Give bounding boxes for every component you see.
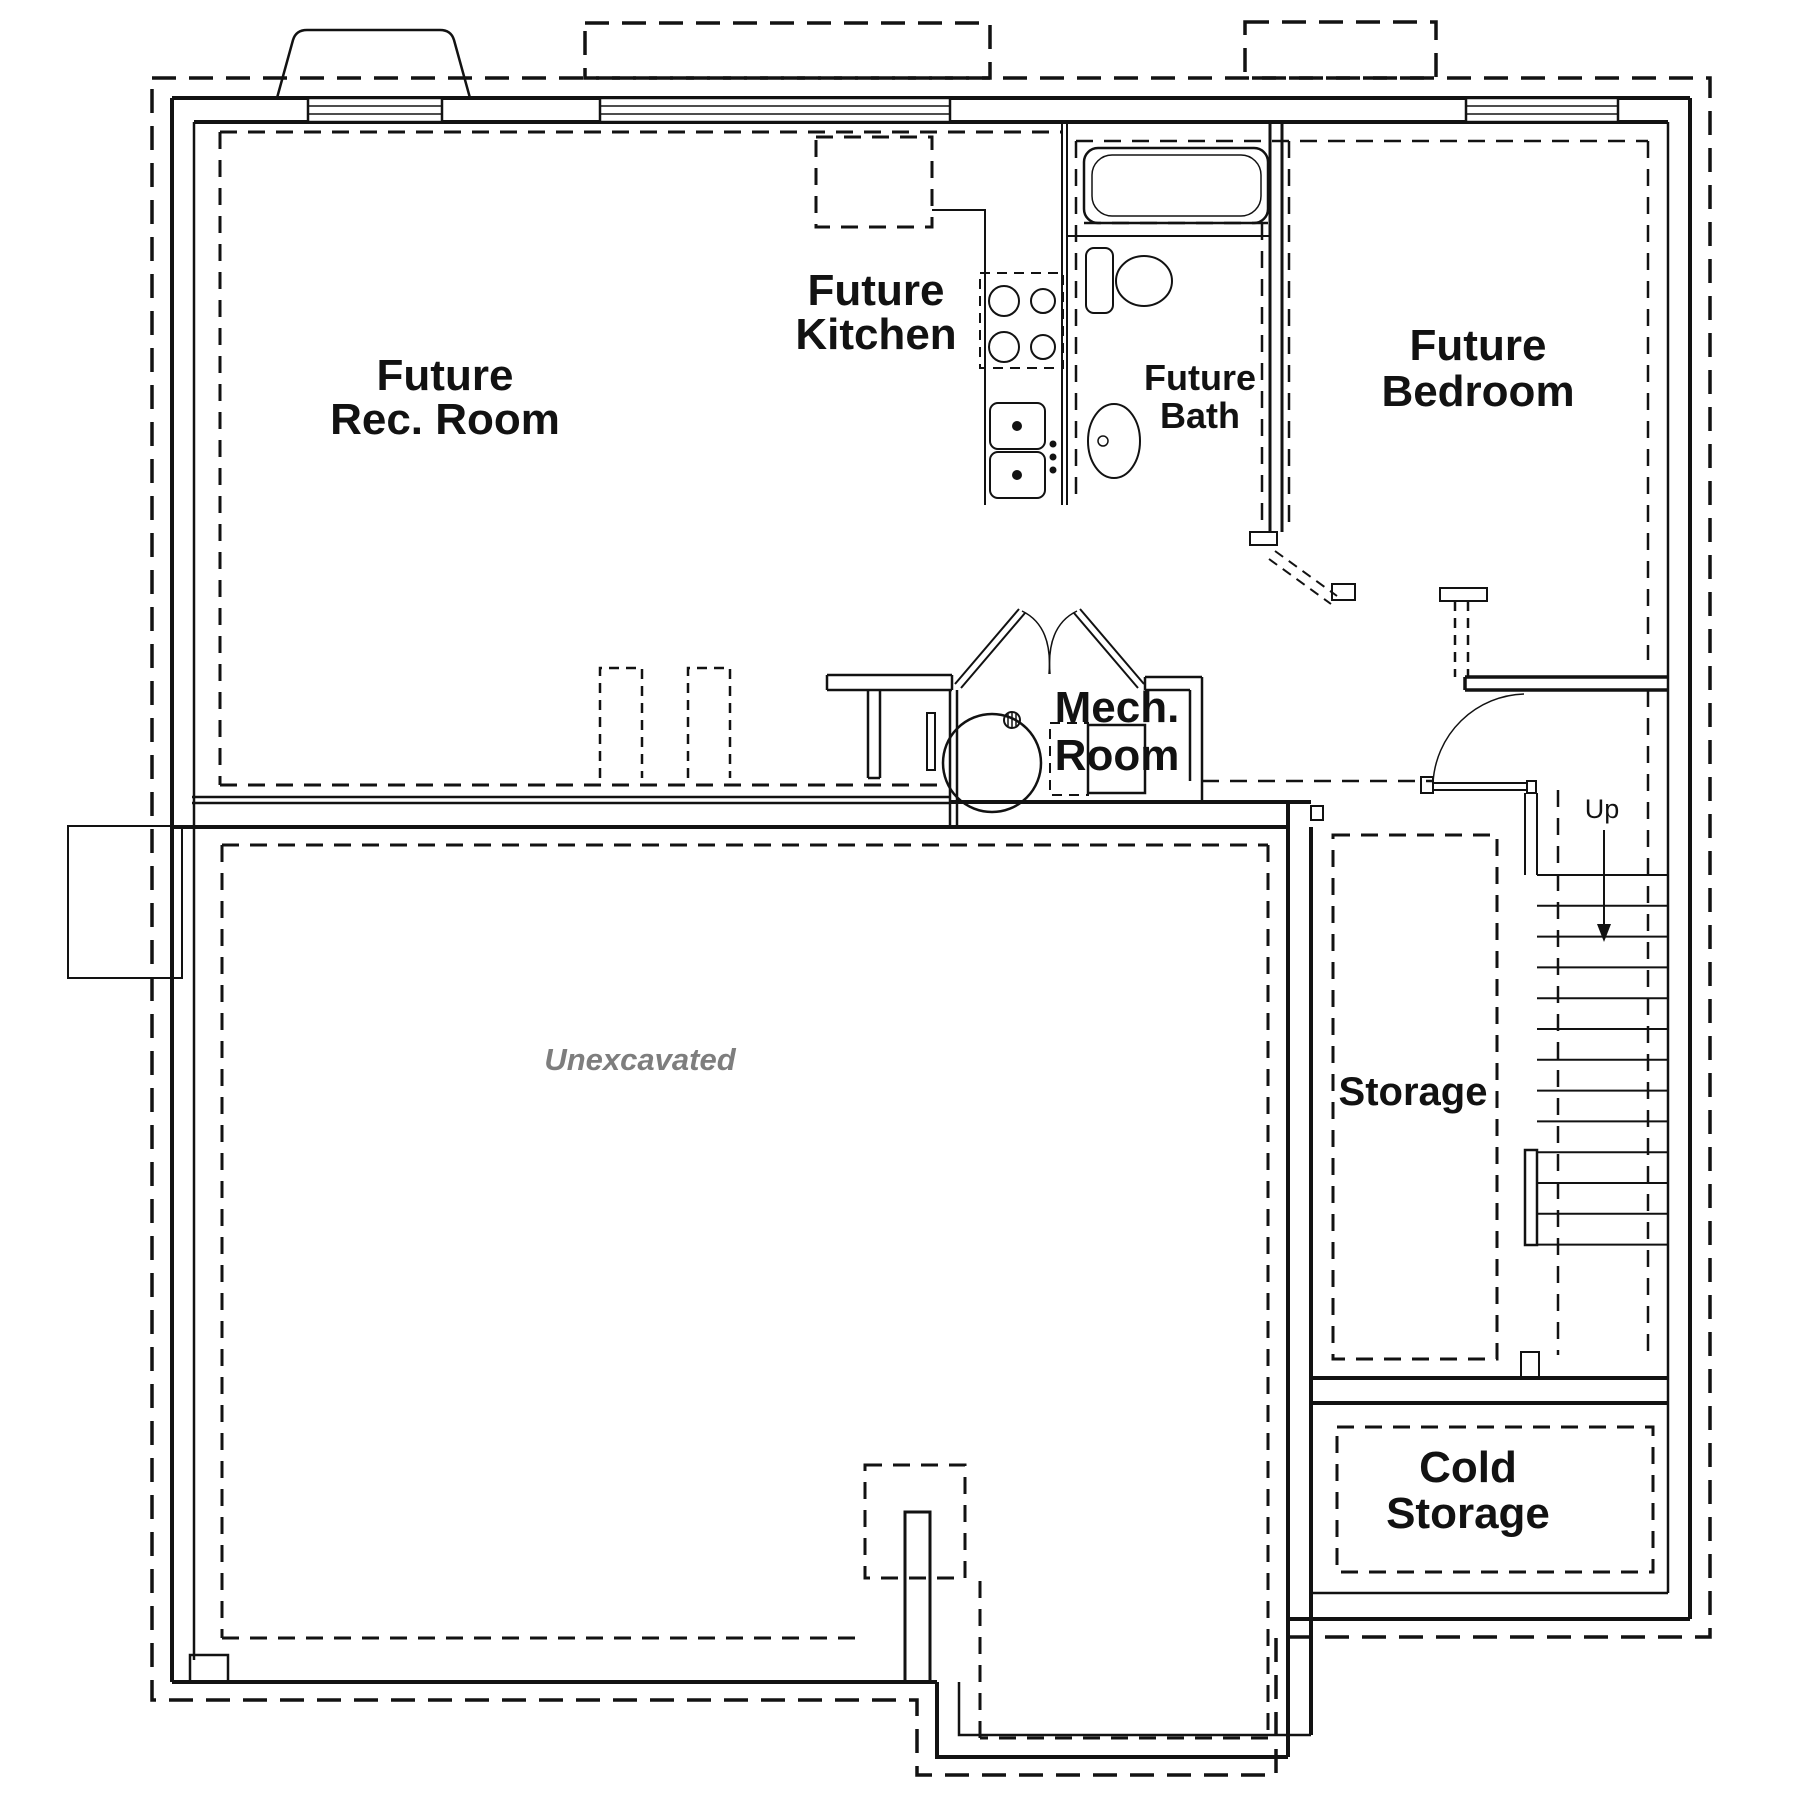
bath-bedroom-divider [1270,122,1282,532]
label-unexcavated: Unexcavated [544,1042,736,1077]
mech-left-wall [950,690,957,827]
mech-wall-stub [868,690,880,778]
pier-wall-stub [905,1512,930,1682]
unexcavated-boundary [222,845,1268,1738]
double-door-mech [955,609,1144,688]
mid-foundation-wall [172,797,1323,827]
bath-left-wall [1062,122,1067,505]
mech-wall-left-segment [827,675,952,690]
window-well-left [68,826,182,978]
windows-and-wells [277,22,1618,122]
kitchen-sink [990,403,1057,498]
foundation-notch [190,1655,228,1682]
floor-plan: Future Rec. Room Future Kitchen Future B… [0,0,1800,1800]
future-wall-tee-cap [1440,588,1487,601]
window-well-rec-room [277,30,470,98]
stair-notch [1521,1352,1539,1378]
electrical-panel [927,713,935,770]
label-mech-2: Room [1055,731,1180,780]
stair-left-wall [1525,793,1537,875]
window-kitchen [600,98,950,122]
divider-end-cap [1250,532,1277,545]
label-bedroom-1: Future [1410,321,1547,370]
label-bedroom-2: Bedroom [1381,367,1574,416]
future-wall-stub-1 [600,668,642,778]
stair-rail [1525,1150,1537,1245]
label-up: Up [1585,794,1620,824]
bathtub [1084,148,1268,223]
bedroom-south-wall [1465,677,1668,690]
unexcavated-area [222,845,1268,1738]
rec-room-boundary [220,132,1062,785]
bath-area [1062,122,1648,545]
floor-plan-page: Future Rec. Room Future Kitchen Future B… [0,0,1800,1800]
label-rec-room-2: Rec. Room [330,395,560,444]
label-kitchen-2: Kitchen [795,310,956,359]
future-door-bedroom [1269,551,1355,604]
bath-sink [1088,404,1140,478]
label-storage: Storage [1339,1070,1488,1114]
pier-footing [865,1465,965,1578]
kitchen-island [816,137,932,227]
wall-notch [1311,806,1323,820]
future-wall-stub-2 [688,668,730,778]
window-rec-room [308,98,442,122]
up-arrow [1597,830,1611,942]
toilet [1086,248,1172,313]
label-mech-1: Mech. [1055,683,1180,732]
label-rec-room-1: Future [377,351,514,400]
label-bath-1: Future [1144,357,1256,398]
window-well-kitchen [585,23,990,78]
label-bath-2: Bath [1160,395,1240,436]
mech-right-wall [1190,677,1202,802]
future-wall-segment [1455,601,1468,677]
storage-cold-divider-wall [1311,1378,1668,1403]
label-cold-1: Cold [1419,1443,1517,1492]
window-well-bedroom [1245,22,1436,78]
door-stairs [1421,694,1536,793]
label-kitchen-1: Future [808,266,945,315]
label-cold-2: Storage [1386,1489,1550,1538]
window-bedroom [1466,98,1618,122]
cooktop [980,273,1063,368]
stairs-area [1525,690,1668,1355]
